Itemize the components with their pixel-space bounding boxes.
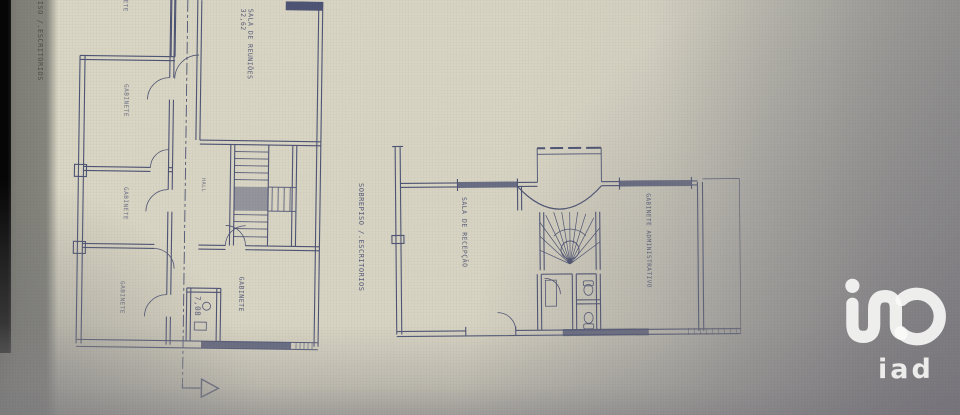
- room-label-gabinete-a: GABINETE: [121, 84, 128, 117]
- wc-fixtures: [545, 280, 593, 329]
- mezzanine-axis-label: SOBREPISO /.ESCRITORIOS: [357, 183, 365, 291]
- room-label-top-cut: GABINETE: [121, 0, 128, 12]
- margin-floor-label: PISO /.ESCRITORIOS: [36, 0, 44, 81]
- iad-logo-text: iad: [878, 354, 956, 385]
- hall-label: HALL: [199, 178, 205, 192]
- room-label-office: GABINETE: [236, 277, 244, 312]
- room-label-meeting: SALA DE REUNIÕES 32,62: [238, 9, 254, 80]
- floor-plan-photo: PISO /.ESCRITORIOS: [0, 0, 960, 415]
- room-label-gabinete-b: GABINETE: [121, 187, 128, 220]
- dimension-label: 7,08: [192, 296, 201, 316]
- room-label-gabinete-c: GABINETE: [117, 281, 124, 314]
- iad-logo-icon: [842, 274, 946, 360]
- floor-plan-mezzanine: SALA DE RECEPÇÃO GABINETE ADMINISTRATIVO: [387, 136, 754, 354]
- spiral-staircase-icon: [540, 212, 601, 271]
- floor-plan-drawing-first-floor: [55, 0, 331, 410]
- photo-black-edge: [0, 0, 11, 353]
- room-label-reception: SALA DE RECEPÇÃO: [460, 197, 468, 268]
- room-label-admin-office: GABINETE ADMINISTRATIVO: [644, 193, 652, 288]
- property-axis-line: [182, 0, 187, 384]
- entry-arrow-icon: [182, 379, 218, 398]
- floor-plan-drawing-mezzanine: [387, 136, 754, 354]
- iad-logo: iad: [838, 274, 956, 406]
- floor-plan-first-floor: GABINETE GABINETE GABINETE GABINETE SALA…: [55, 0, 331, 410]
